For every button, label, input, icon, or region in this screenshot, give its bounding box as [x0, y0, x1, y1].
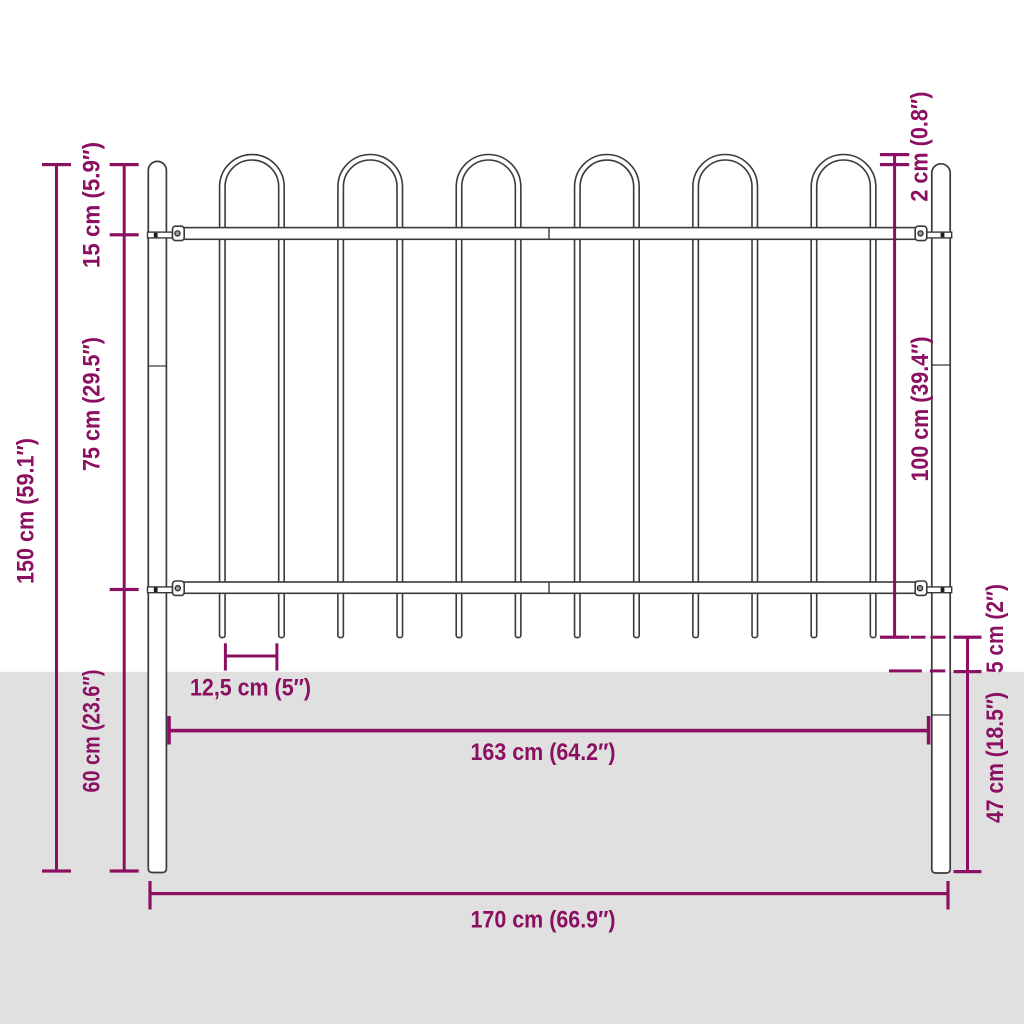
svg-text:150 cm (59.1″): 150 cm (59.1″): [13, 438, 40, 584]
svg-text:75 cm (29.5″): 75 cm (29.5″): [79, 337, 106, 471]
svg-text:47 cm (18.5″): 47 cm (18.5″): [982, 692, 1009, 823]
svg-text:5 cm (2″): 5 cm (2″): [982, 584, 1009, 673]
svg-text:2 cm (0.8″): 2 cm (0.8″): [907, 92, 934, 202]
svg-text:170 cm (66.9″): 170 cm (66.9″): [471, 907, 616, 934]
svg-text:60 cm (23.6″): 60 cm (23.6″): [79, 670, 106, 793]
svg-text:163 cm (64.2″): 163 cm (64.2″): [471, 739, 616, 766]
svg-text:15 cm (5.9″): 15 cm (5.9″): [79, 142, 106, 268]
svg-text:100 cm (39.4″): 100 cm (39.4″): [907, 337, 934, 482]
svg-text:12,5 cm (5″): 12,5 cm (5″): [190, 675, 311, 702]
